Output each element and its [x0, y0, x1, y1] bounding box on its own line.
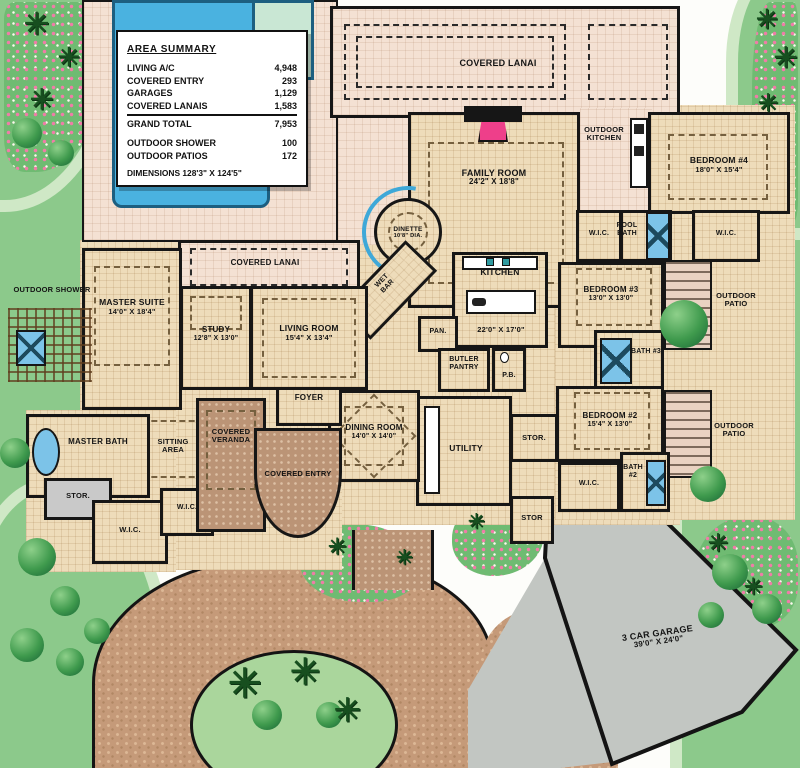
summary-row: OUTDOOR SHOWER100 [127, 137, 297, 150]
palm-icon: ✳ [756, 6, 778, 32]
palm-icon: ✳ [334, 694, 361, 726]
grill-icon [634, 146, 644, 156]
summary-grand-total: GRAND TOTAL7,953 [127, 118, 297, 131]
storage-label: STOR [512, 514, 552, 522]
shrub-icon [84, 618, 110, 644]
bedroom-4-label: BEDROOM #4 18'0" X 15'4" [658, 156, 780, 174]
shrub-icon [12, 118, 42, 148]
sitting-area-label: SITTING AREA [146, 438, 200, 455]
dining-room-label: DINING ROOM 14'0" X 14'0" [330, 424, 418, 441]
master-bath-label: MASTER BATH [66, 438, 130, 447]
storage-label: STOR. [512, 434, 556, 442]
shower-icon [646, 460, 666, 506]
bath-2-label: BATH #2 [618, 464, 648, 480]
summary-row: COVERED LANAIS1,583 [127, 100, 297, 113]
shrub-icon [660, 300, 708, 348]
tub-icon [32, 428, 60, 476]
summary-row: LIVING A/C4,948 [127, 62, 297, 75]
palm-icon: ✳ [228, 664, 262, 704]
wic-label: W.I.C. [560, 480, 618, 488]
bedroom-2-label: BEDROOM #2 15'4" X 13'0" [558, 412, 662, 429]
outdoor-patio-label: OUTDOOR PATIO [708, 292, 764, 309]
powder-bath [492, 348, 526, 392]
cooktop-icon [472, 298, 486, 306]
outdoor-shower-pad [16, 330, 46, 366]
veranda-columns [206, 410, 256, 490]
outdoor-patio-deck [664, 390, 712, 478]
foyer-label: FOYER [282, 394, 336, 403]
kitchen-counter [462, 256, 538, 270]
utility-label: UTILITY [424, 444, 508, 454]
shrub-icon [712, 554, 748, 590]
master-suite-label: MASTER SUITE 14'0" X 18'4" [84, 298, 180, 316]
shower-icon [646, 212, 670, 260]
palm-icon: ✳ [758, 92, 778, 116]
shrub-icon [0, 438, 30, 468]
palm-icon: ✳ [328, 536, 346, 558]
lanai-columns [588, 24, 668, 100]
outdoor-kitchen-label: OUTDOOR KITCHEN [572, 126, 636, 143]
shrub-icon [18, 538, 56, 576]
living-room-label: LIVING ROOM 15'4" X 13'4" [252, 324, 366, 342]
sink-icon [502, 258, 510, 266]
pool-bath-label: POOL BATH [608, 222, 646, 238]
outdoor-patio-label: OUTDOOR PATIO [706, 422, 762, 439]
palm-icon: ✳ [774, 44, 797, 72]
palm-icon: ✳ [290, 654, 320, 690]
shrub-icon [56, 648, 84, 676]
shrub-icon [698, 602, 724, 628]
covered-entry-label: COVERED ENTRY [262, 470, 334, 478]
palm-icon: ✳ [744, 576, 762, 598]
bath-3-label: BATH #3 [630, 348, 662, 356]
shrub-icon [50, 586, 80, 616]
palm-icon: ✳ [468, 512, 485, 532]
pantry-label: PAN. [422, 328, 454, 336]
shrub-icon [48, 140, 74, 166]
study-label: STUDY 12'8" X 13'0" [182, 326, 250, 343]
driveway-east [478, 610, 618, 768]
kitchen-dims-label: 22'0" X 17'0" [458, 326, 544, 334]
shrub-icon [690, 466, 726, 502]
toilet-icon [500, 352, 509, 363]
palm-icon: ✳ [30, 86, 53, 114]
palm-icon: ✳ [58, 44, 80, 70]
area-summary-title: AREA SUMMARY [127, 44, 297, 55]
palm-icon: ✳ [708, 532, 728, 556]
outdoor-shower-label: OUTDOOR SHOWER [6, 286, 98, 294]
wic-label: W.I.C. [96, 526, 164, 534]
area-summary-table: AREA SUMMARY LIVING A/C4,948 COVERED ENT… [116, 30, 308, 187]
sink-icon [486, 258, 494, 266]
butler-pantry-label: BUTLER PANTRY [436, 356, 492, 372]
family-room-label: FAMILY ROOM 24'2" X 18'8" [420, 168, 568, 187]
covered-lanai-label: COVERED LANAI [428, 58, 568, 68]
floor-plan: INSHELF COVERED LANAI COVERED LANAI OUTD… [0, 0, 800, 768]
palm-icon: ✳ [396, 548, 413, 568]
dinette-label: DINETTE 10'8" DIA. [376, 226, 440, 240]
shrub-icon [10, 628, 44, 662]
summary-row: OUTDOOR PATIOS172 [127, 150, 297, 163]
covered-lanai-left-label: COVERED LANAI [205, 259, 325, 268]
summary-row: COVERED ENTRY293 [127, 75, 297, 88]
bed-outline [94, 266, 170, 366]
summary-divider [127, 114, 297, 116]
fireplace-hearth [464, 106, 522, 122]
bedroom-3-label: BEDROOM #3 13'0" X 13'0" [560, 286, 662, 303]
powder-bath-label: P.B. [494, 372, 524, 380]
shower-icon [600, 338, 632, 384]
fireplace [478, 120, 508, 142]
palm-icon: ✳ [24, 10, 49, 40]
wic-label: W.I.C. [700, 230, 752, 238]
summary-dimensions: DIMENSIONS 128'3" X 124'5" [127, 168, 297, 178]
entry-walk [352, 530, 434, 590]
summary-row: GARAGES1,129 [127, 87, 297, 100]
